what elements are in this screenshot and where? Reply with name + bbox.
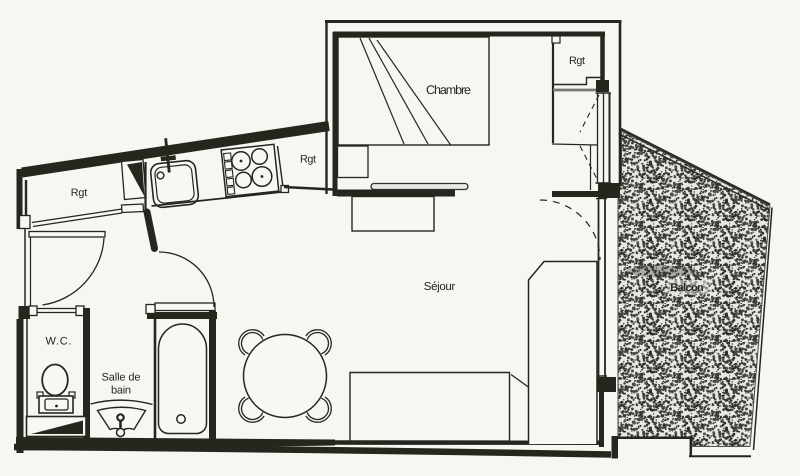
svg-text:Rgt: Rgt [300,154,316,166]
svg-text:Rgt: Rgt [569,55,585,67]
svg-text:Séjour: Séjour [424,281,456,293]
svg-text:Balcon: Balcon [670,282,704,294]
svg-text:Rgt: Rgt [71,187,88,199]
svg-text:Salle de: Salle de [102,372,141,384]
svg-text:bain: bain [111,385,131,397]
svg-text:W.C.: W.C. [46,336,72,348]
svg-text:Chambre: Chambre [426,83,471,97]
